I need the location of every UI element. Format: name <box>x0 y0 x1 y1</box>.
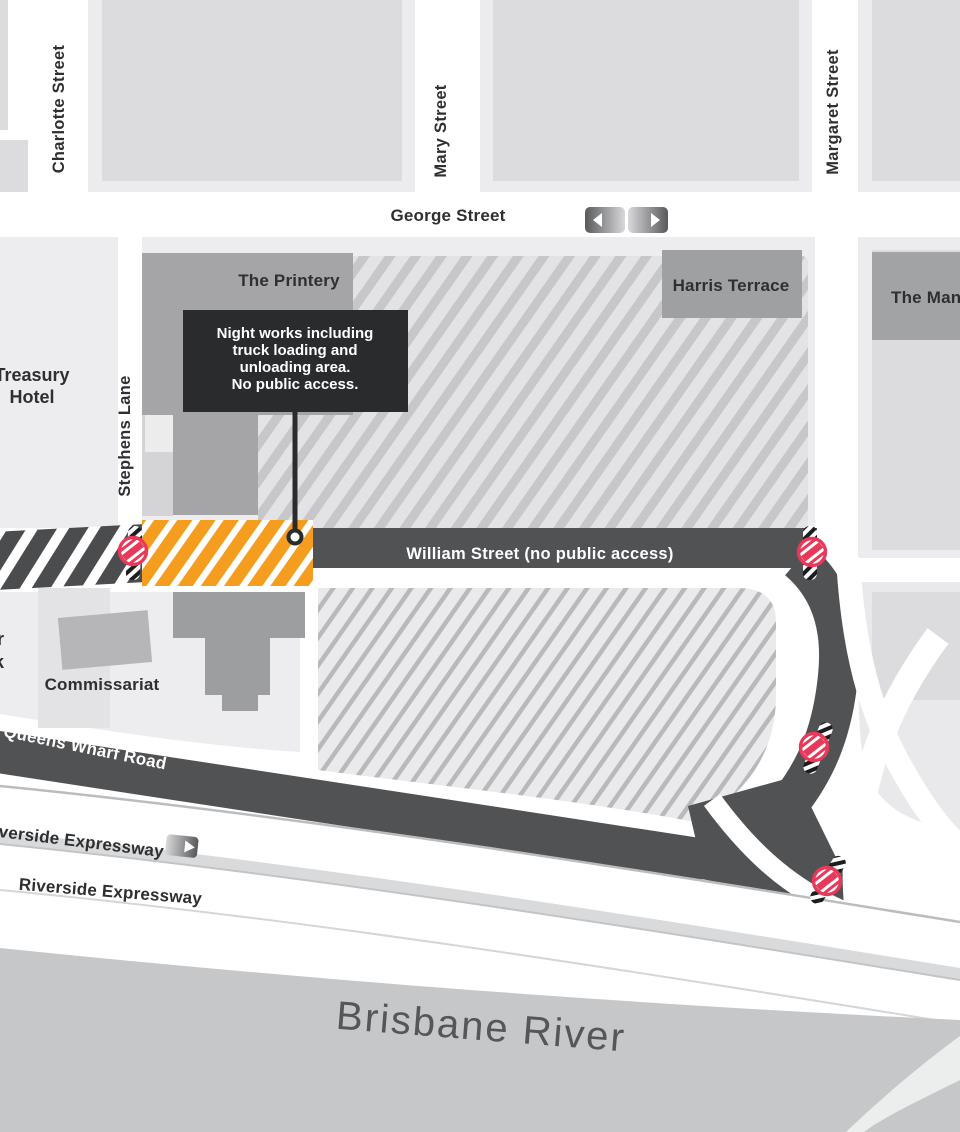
commissariat-outbuilding <box>58 610 152 670</box>
no-entry-icon <box>118 537 148 566</box>
commissariat-label: Commissariat <box>45 675 160 694</box>
no-entry-icon <box>812 867 842 896</box>
william-street-label: William Street (no public access) <box>406 545 673 563</box>
brisbane-road-closure-map: Night works including truck loading and … <box>0 0 960 1132</box>
stephens-lane-label: Stephens Lane <box>116 375 134 496</box>
callout-line-1: Night works including <box>217 325 374 342</box>
location-marker-icon <box>289 531 302 544</box>
treasury-label-line1: Treasury <box>0 365 70 385</box>
right-arrow-icon <box>165 834 199 858</box>
clipped-label-fragment-top: r <box>0 629 4 649</box>
no-entry-icon <box>799 733 829 762</box>
charlotte-street-label: Charlotte Street <box>50 45 68 174</box>
callout-line-2: truck loading and <box>232 342 357 359</box>
night-works-zone <box>142 520 313 586</box>
mary-street-label: Mary Street <box>432 84 450 177</box>
george-street-label: George Street <box>390 206 505 225</box>
mansions-label: The Man <box>891 288 960 307</box>
harris-terrace-label: Harris Terrace <box>673 276 790 295</box>
margaret-street-label: Margaret Street <box>824 49 842 175</box>
treasury-label-line2: Hotel <box>10 387 55 407</box>
callout-line-3: unloading area. <box>240 359 351 376</box>
printery-label: The Printery <box>238 271 340 290</box>
night-works-callout: Night works including truck loading and … <box>183 310 408 412</box>
no-entry-icon <box>797 538 827 567</box>
callout-line-4: No public access. <box>232 376 359 393</box>
